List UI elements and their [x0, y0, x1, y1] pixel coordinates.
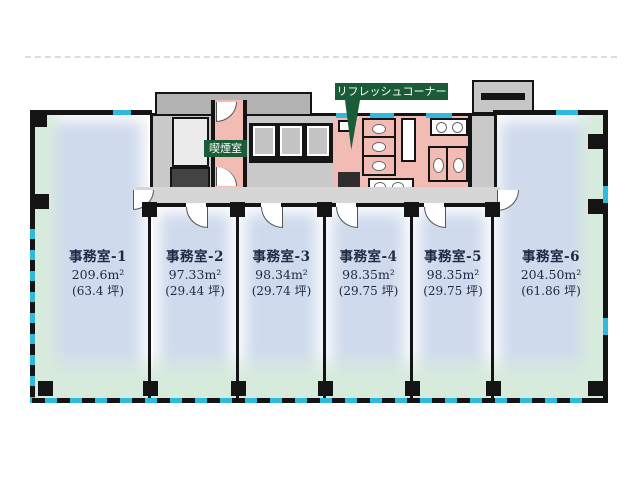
wet-area-right-wall [468, 116, 472, 198]
wet-cabinet [401, 118, 416, 162]
toilet-icon-5 [453, 158, 464, 173]
room-area-m2: 98.34m² [239, 266, 324, 283]
stall-divider-2 [364, 155, 394, 157]
column [318, 381, 333, 396]
room-label-2: 事務室-2 97.33m² (29.44 坪) [153, 248, 237, 300]
room-name: 事務室-6 [496, 248, 606, 266]
column [231, 381, 246, 396]
column [486, 381, 501, 396]
sink-icon-2 [452, 122, 463, 133]
room-name: 事務室-1 [42, 248, 154, 266]
exterior-stair-landing [481, 93, 525, 100]
partition-1-2 [148, 207, 151, 398]
room-name: 事務室-5 [411, 248, 495, 266]
column [142, 202, 157, 217]
partition-2-3 [236, 207, 239, 398]
room-area-m2: 98.35m² [326, 266, 411, 283]
stair-landing [170, 167, 210, 189]
room-label-5: 事務室-5 98.35m² (29.75 坪) [411, 248, 495, 300]
corridor [136, 187, 500, 203]
room-area-tsubo: (29.44 坪) [153, 283, 237, 300]
top-wall-left [30, 110, 152, 115]
room-area-m2: 98.35m² [411, 266, 495, 283]
toilet-icon-3 [372, 161, 386, 171]
left-window-wall [30, 218, 35, 403]
floor-plan: リフレッシュコーナー 喫煙室 事務室-1 209.6m² (63.4 坪) 事務… [0, 0, 640, 480]
room-label-3: 事務室-3 98.34m² (29.74 坪) [239, 248, 324, 300]
room-area-tsubo: (29.74 坪) [239, 283, 324, 300]
room-name: 事務室-4 [326, 248, 411, 266]
column [230, 202, 245, 217]
room-area-tsubo: (29.75 坪) [411, 283, 495, 300]
room-area-m2: 97.33m² [153, 266, 237, 283]
bottom-window-wall [32, 398, 586, 403]
top-window-left [113, 110, 131, 115]
toilet-icon-4 [433, 158, 444, 173]
room-area-tsubo: (61.86 坪) [496, 283, 606, 300]
column [588, 381, 603, 396]
toilet-icon-2 [372, 142, 386, 152]
stall-divider-1 [364, 136, 394, 138]
room-area-m2: 204.50m² [496, 266, 606, 283]
column [588, 199, 603, 214]
bottom-wall-solid-right [586, 398, 608, 403]
right-window-1 [603, 186, 608, 203]
partition-4-5 [410, 207, 413, 398]
column [405, 381, 420, 396]
room-label-4: 事務室-4 98.35m² (29.75 坪) [326, 248, 411, 300]
toilet-icon-1 [372, 124, 386, 134]
elevator-car-1 [253, 126, 275, 156]
column [317, 202, 332, 217]
site-boundary-line [25, 56, 617, 58]
column [32, 112, 47, 127]
right-window-2 [603, 318, 608, 335]
column [404, 202, 419, 217]
stall-pair-divider [446, 148, 448, 180]
column [485, 202, 500, 217]
top-window-right [556, 110, 578, 115]
column [34, 194, 49, 209]
room-name: 事務室-3 [239, 248, 324, 266]
room-area-tsubo: (29.75 坪) [326, 283, 411, 300]
room-area-tsubo: (63.4 坪) [42, 283, 154, 300]
smoking-room-callout: 喫煙室 [204, 140, 247, 157]
room-label-1: 事務室-1 209.6m² (63.4 坪) [42, 248, 154, 300]
core-window-2 [370, 113, 394, 118]
sink-icon-1 [436, 122, 447, 133]
top-wall-right [493, 110, 608, 115]
column [38, 381, 53, 396]
room-label-6: 事務室-6 204.50m² (61.86 坪) [496, 248, 606, 300]
room-name: 事務室-2 [153, 248, 237, 266]
core-window-3 [426, 113, 452, 118]
elevator-car-3 [307, 126, 329, 156]
refresh-corner-callout: リフレッシュコーナー [335, 83, 448, 100]
partition-5-6 [491, 207, 494, 398]
room-area-m2: 209.6m² [42, 266, 154, 283]
column [588, 134, 603, 149]
partition-3-4 [323, 207, 326, 398]
elevator-car-2 [280, 126, 302, 156]
column [143, 381, 158, 396]
